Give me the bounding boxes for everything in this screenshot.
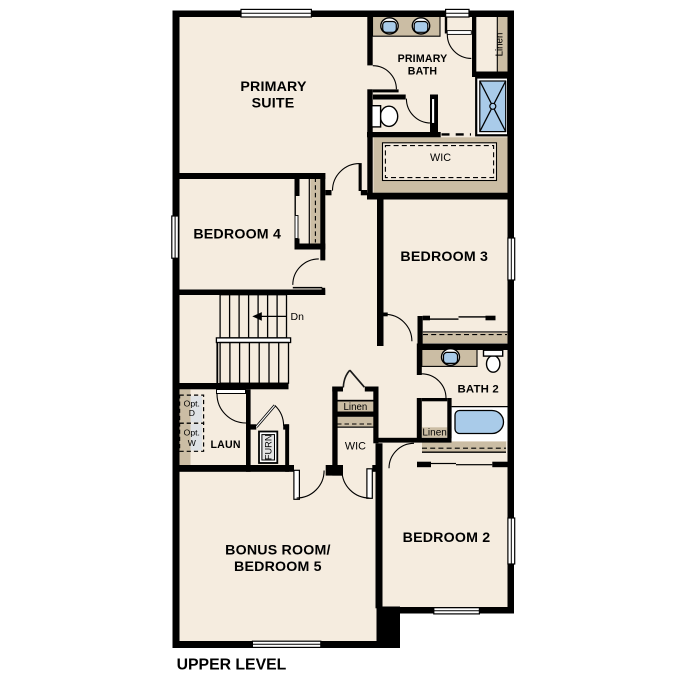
svg-text:Opt.: Opt.: [184, 428, 200, 438]
svg-text:LAUN: LAUN: [210, 439, 240, 451]
svg-text:WIC: WIC: [430, 152, 451, 164]
svg-text:BONUS ROOM/: BONUS ROOM/: [225, 542, 330, 558]
svg-text:BATH 2: BATH 2: [457, 384, 499, 396]
svg-text:Linen: Linen: [422, 427, 446, 438]
svg-text:UPPER LEVEL: UPPER LEVEL: [177, 657, 287, 674]
svg-text:SUITE: SUITE: [252, 96, 295, 112]
svg-text:FURN: FURN: [264, 435, 274, 461]
svg-text:BEDROOM 3: BEDROOM 3: [400, 249, 488, 265]
svg-text:Linen: Linen: [495, 33, 506, 57]
svg-text:BEDROOM 2: BEDROOM 2: [403, 530, 491, 546]
svg-text:PRIMARY: PRIMARY: [398, 53, 448, 65]
svg-text:WIC: WIC: [345, 441, 366, 453]
svg-text:BEDROOM 4: BEDROOM 4: [193, 227, 281, 243]
svg-text:W: W: [188, 438, 197, 448]
svg-text:BATH: BATH: [408, 66, 437, 78]
svg-text:PRIMARY: PRIMARY: [240, 79, 307, 95]
svg-text:Linen: Linen: [344, 402, 368, 413]
svg-text:Dn: Dn: [291, 311, 305, 323]
svg-text:BEDROOM 5: BEDROOM 5: [234, 559, 322, 575]
svg-text:D: D: [189, 408, 195, 418]
